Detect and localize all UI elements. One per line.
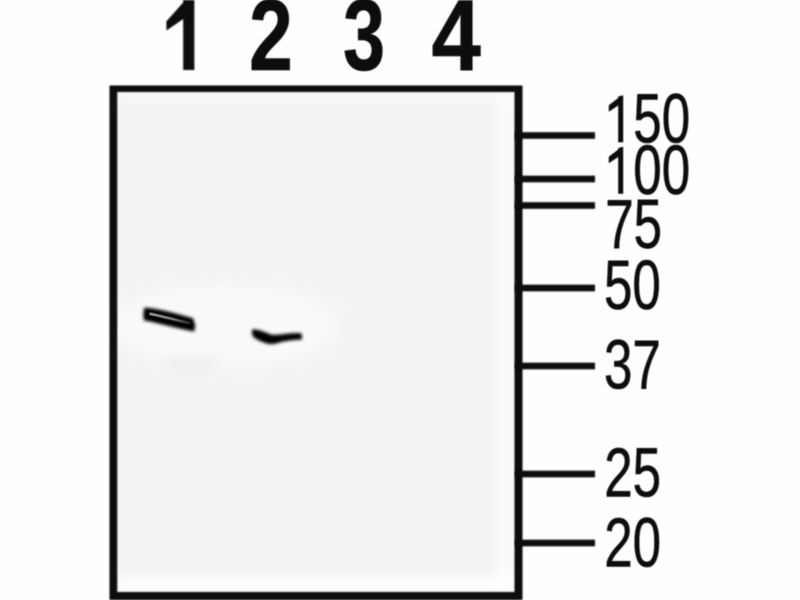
svg-text:20: 20 — [604, 504, 661, 582]
svg-text:50: 50 — [604, 246, 661, 324]
svg-text:4: 4 — [431, 0, 481, 92]
svg-text:3: 3 — [343, 0, 385, 91]
svg-text:37: 37 — [604, 326, 661, 404]
svg-text:25: 25 — [604, 434, 661, 512]
svg-text:2: 2 — [249, 0, 293, 92]
